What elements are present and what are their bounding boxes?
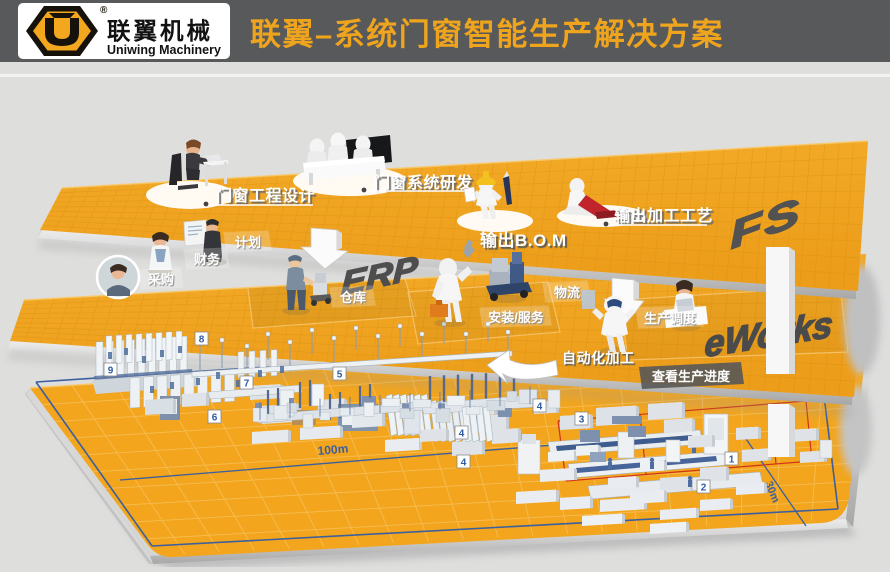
svg-text:3: 3	[579, 415, 585, 426]
svg-text:采购: 采购	[147, 272, 174, 287]
svg-text:2: 2	[701, 483, 707, 494]
svg-text:门窗系统研发: 门窗系统研发	[374, 173, 474, 192]
svg-text:物流: 物流	[554, 285, 580, 300]
svg-text:财务: 财务	[194, 252, 221, 267]
svg-text:联翼–系统门窗智能生产解决方案: 联翼–系统门窗智能生产解决方案	[250, 17, 724, 52]
svg-text:联翼机械: 联翼机械	[107, 18, 213, 44]
svg-text:输出加工工艺: 输出加工工艺	[614, 206, 713, 225]
svg-text:4: 4	[459, 429, 465, 440]
svg-text:®: ®	[100, 5, 108, 16]
svg-text:门窗工程设计: 门窗工程设计	[216, 186, 315, 205]
svg-text:5: 5	[337, 370, 343, 381]
svg-text:4: 4	[537, 402, 543, 413]
svg-text:计划: 计划	[235, 235, 261, 250]
svg-text:1: 1	[729, 455, 735, 466]
svg-text:安装/服务: 安装/服务	[488, 310, 545, 325]
svg-text:100m: 100m	[317, 441, 349, 458]
svg-text:仓库: 仓库	[339, 290, 366, 305]
svg-text:输出B.O.M: 输出B.O.M	[480, 230, 567, 250]
svg-text:7: 7	[244, 379, 250, 390]
svg-text:查看生产进度: 查看生产进度	[651, 369, 731, 384]
svg-text:Uniwing Machinery: Uniwing Machinery	[107, 43, 221, 57]
svg-text:9: 9	[108, 366, 114, 377]
svg-text:生产调度: 生产调度	[644, 311, 697, 326]
svg-text:6: 6	[212, 413, 218, 424]
svg-text:自动化加工: 自动化加工	[562, 350, 635, 366]
svg-text:8: 8	[199, 335, 205, 346]
svg-text:4: 4	[461, 458, 467, 469]
